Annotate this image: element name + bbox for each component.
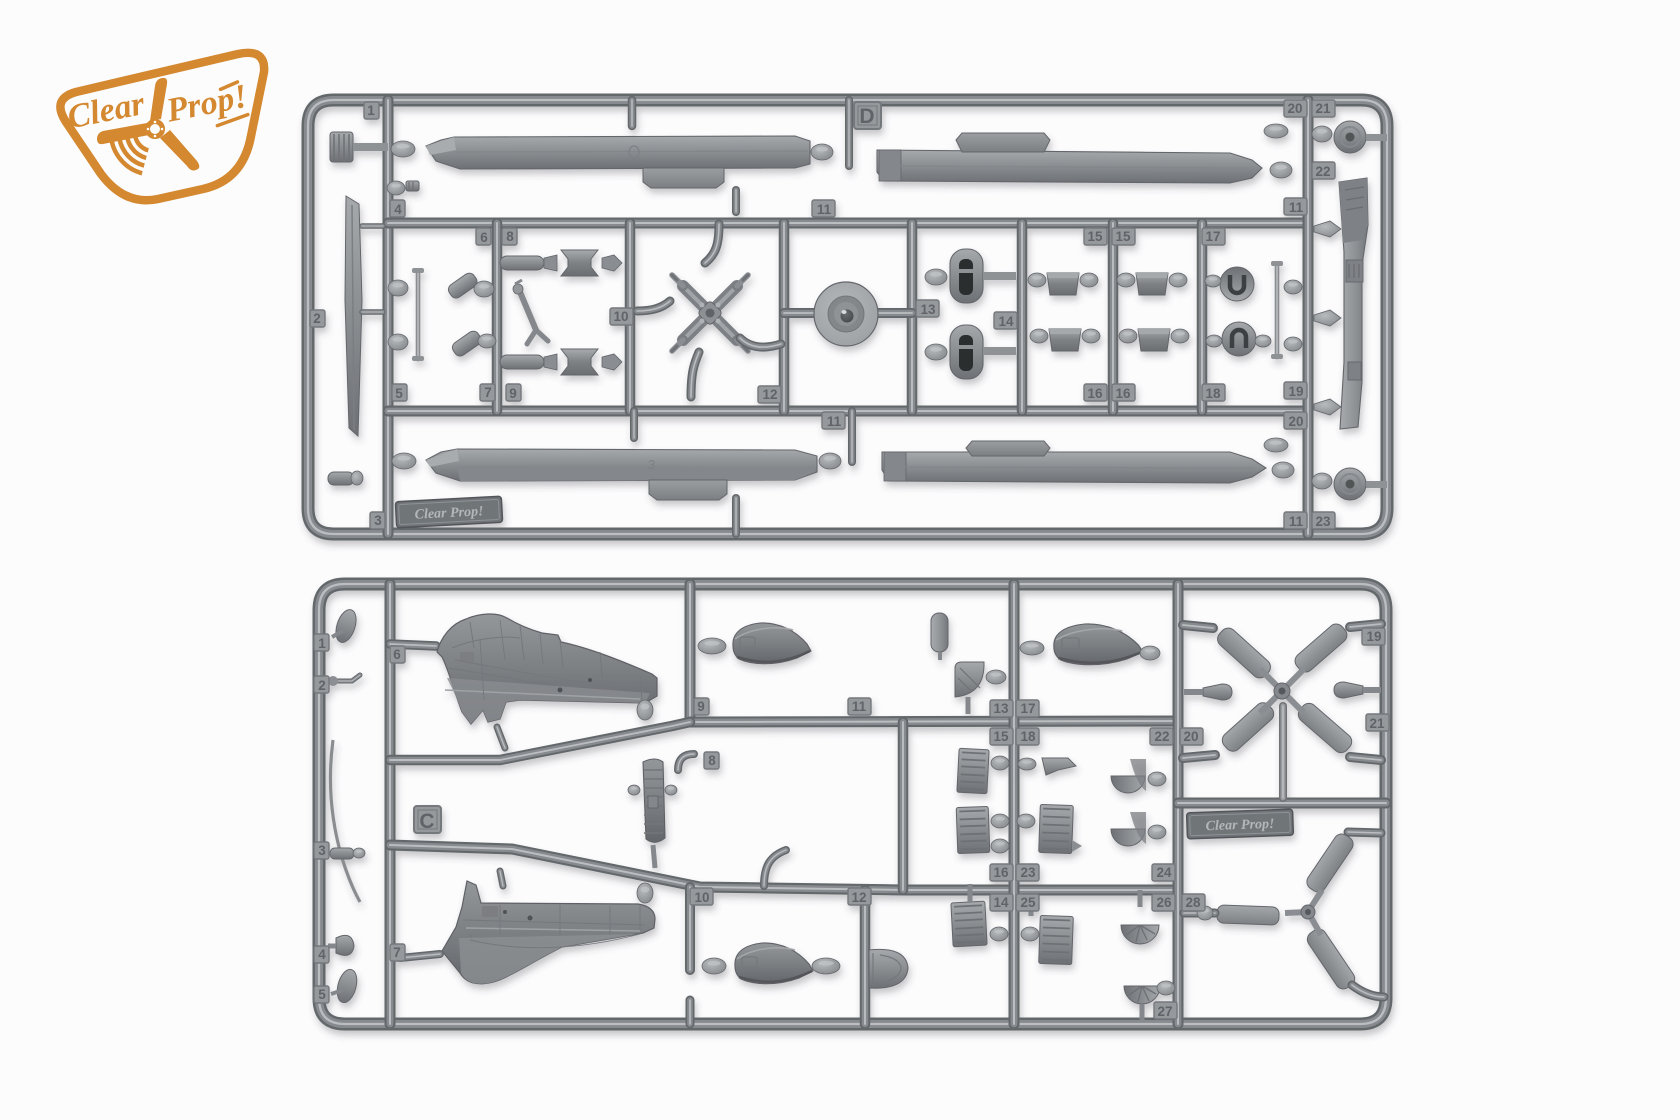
svg-text:25: 25 [1020,895,1036,910]
svg-text:6: 6 [393,647,401,662]
svg-text:23: 23 [1020,865,1036,880]
svg-text:3: 3 [318,843,326,858]
svg-text:11: 11 [852,699,867,714]
svg-text:16: 16 [1115,386,1131,401]
svg-text:11: 11 [1289,514,1304,529]
svg-text:C: C [419,810,434,833]
svg-text:7: 7 [484,385,492,400]
svg-text:20: 20 [1288,414,1303,429]
svg-text:14: 14 [993,895,1009,910]
svg-text:14: 14 [998,314,1014,329]
svg-text:13: 13 [920,302,936,317]
svg-text:10: 10 [613,309,628,324]
svg-text:16: 16 [1087,386,1103,401]
svg-text:10: 10 [694,890,709,905]
svg-text:12: 12 [762,387,777,402]
svg-text:9: 9 [509,386,517,401]
svg-text:2: 2 [313,311,321,326]
svg-text:5: 5 [318,987,326,1002]
svg-text:11: 11 [817,202,832,217]
svg-text:22: 22 [1154,729,1169,744]
svg-text:5: 5 [395,386,403,401]
svg-text:15: 15 [1087,229,1103,244]
svg-text:17: 17 [1020,701,1035,716]
svg-text:20: 20 [1183,729,1198,744]
svg-text:19: 19 [1288,384,1303,399]
svg-text:17: 17 [1205,229,1220,244]
svg-text:21: 21 [1369,716,1385,731]
svg-text:24: 24 [1156,865,1172,880]
svg-text:4: 4 [318,947,326,962]
svg-text:Clear Prop!: Clear Prop! [1205,817,1274,834]
svg-text:Prop!: Prop! [163,78,251,130]
svg-text:6: 6 [480,230,488,245]
svg-text:16: 16 [993,865,1009,880]
svg-text:3: 3 [374,513,382,528]
svg-text:27: 27 [1157,1004,1172,1019]
svg-text:19: 19 [1366,629,1381,644]
svg-text:23: 23 [1315,514,1331,529]
svg-text:8: 8 [708,753,716,768]
svg-text:1: 1 [367,103,375,118]
svg-text:15: 15 [993,729,1009,744]
svg-text:15: 15 [1115,229,1131,244]
svg-text:8: 8 [506,229,514,244]
svg-text:22: 22 [1315,164,1330,179]
svg-text:2: 2 [318,678,326,693]
svg-text:20: 20 [1287,101,1302,116]
svg-text:D: D [859,105,874,128]
svg-text:13: 13 [993,701,1009,716]
svg-text:26: 26 [1156,895,1172,910]
svg-text:9: 9 [697,699,705,714]
svg-text:18: 18 [1205,386,1221,401]
svg-text:28: 28 [1185,895,1201,910]
svg-text:7: 7 [393,945,401,960]
svg-text:11: 11 [827,414,842,429]
svg-text:1: 1 [318,636,326,651]
svg-text:12: 12 [851,890,866,905]
svg-text:4: 4 [394,202,402,217]
svg-text:18: 18 [1020,729,1036,744]
svg-text:11: 11 [1289,200,1304,215]
svg-text:3: 3 [648,457,655,472]
svg-text:21: 21 [1315,101,1331,116]
